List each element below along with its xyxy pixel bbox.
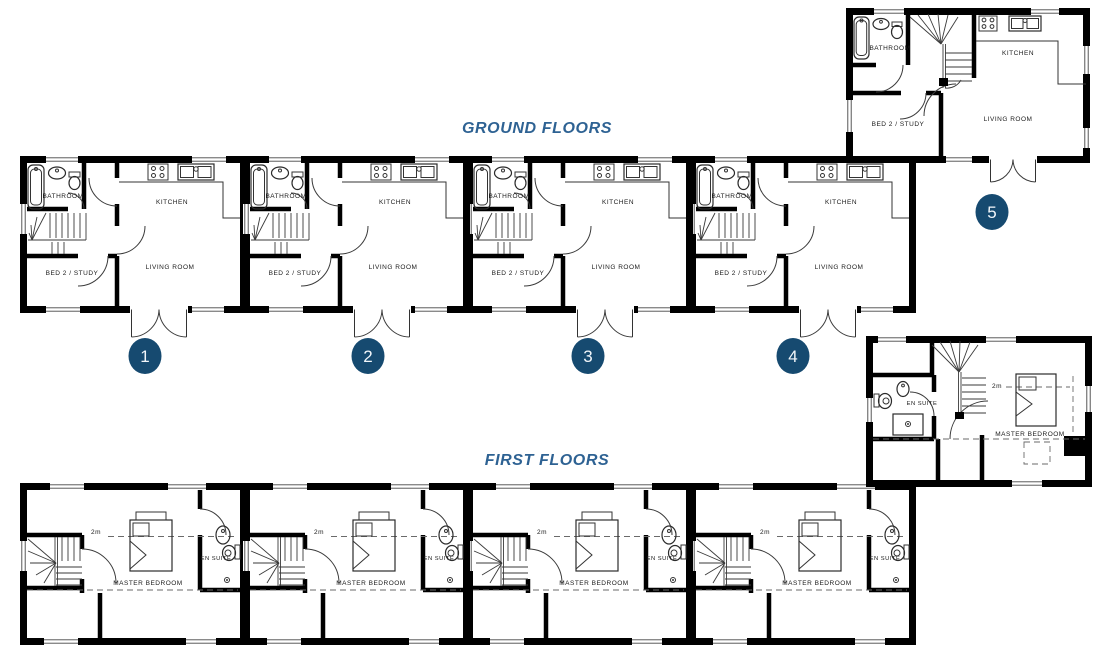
entry-door-arc [799, 306, 857, 337]
ensuite-sink-icon [216, 526, 230, 544]
bed2-study-label: BED 2 / STUDY [269, 270, 322, 277]
bathroom-sink-icon [718, 167, 735, 179]
window [846, 100, 853, 132]
landing-door-arc [82, 549, 116, 583]
ensuite-door-arc [646, 509, 672, 535]
window [638, 156, 672, 163]
landing-door-arc [751, 549, 785, 583]
stairs-icon [910, 14, 972, 88]
stairs-icon [28, 537, 82, 586]
badge-number: 4 [788, 347, 797, 366]
toilet-icon [69, 172, 80, 190]
bathtub-icon [854, 17, 869, 59]
window [715, 306, 749, 313]
window [986, 336, 1016, 343]
window [492, 306, 526, 313]
kitchen-sink-icon [847, 164, 883, 180]
toilet-icon [738, 172, 749, 190]
window [638, 306, 670, 313]
window [878, 336, 906, 343]
hob-icon [979, 16, 997, 31]
window [186, 638, 216, 645]
entry-door-arc [576, 306, 634, 337]
window [713, 638, 747, 645]
window [946, 156, 972, 163]
stairs-icon [474, 537, 528, 586]
ensuite-sink-icon [439, 526, 453, 544]
window [614, 483, 652, 490]
exterior-wall [850, 12, 1087, 160]
drain-icon [225, 578, 230, 583]
bed-icon [130, 512, 172, 571]
kitchen-label: KITCHEN [602, 199, 634, 206]
height-marker-label: 2m [992, 383, 1002, 390]
unit-5-first-floor: 2m EN SUITE MASTER BEDROOM [866, 336, 1092, 487]
bathroom-sink-icon [873, 19, 889, 30]
en-suite-label: EN SUITE [201, 556, 232, 562]
toilet-icon [292, 172, 303, 190]
bathtub-icon [28, 165, 44, 209]
bathroom-label: BATHROOM [488, 193, 529, 200]
kitchen-label: KITCHEN [825, 199, 857, 206]
height-marker-label: 2m [314, 529, 324, 536]
stairs-icon [251, 213, 309, 254]
bathtub-icon [474, 165, 490, 209]
window [632, 638, 662, 645]
window [46, 306, 80, 313]
ground-floor-unit-4: BATHROOM KITCHEN LIVING ROOM BED 2 / STU… [689, 156, 913, 337]
en-suite-label: EN SUITE [424, 556, 455, 562]
window [20, 204, 27, 234]
hall-door-arc [312, 178, 340, 206]
ensuite-toilet-icon [874, 394, 892, 409]
toilet-icon [892, 22, 903, 39]
interior-walls [27, 163, 117, 306]
living-room-door-arc [117, 226, 145, 254]
window [1083, 128, 1090, 148]
first-floors-title: FIRST FLOORS [485, 452, 610, 469]
window [715, 156, 747, 163]
en-suite-label: EN SUITE [870, 556, 901, 562]
bed-icon [353, 512, 395, 571]
window [496, 483, 530, 490]
window [273, 483, 307, 490]
window [243, 204, 250, 234]
exterior-wall [24, 487, 244, 642]
bathroom-label: BATHROOM [265, 193, 306, 200]
interior-walls [873, 343, 982, 480]
ensuite-sink-icon [885, 526, 899, 544]
bed-icon [576, 512, 618, 571]
bathtub-icon [251, 165, 267, 209]
ensuite-door-arc [869, 509, 895, 535]
first-floor-unit-3: 2m MASTER BEDROOM EN SUITE [466, 483, 690, 645]
kitchen-label: KITCHEN [156, 199, 188, 206]
window [1031, 8, 1059, 15]
badge-number: 5 [987, 203, 996, 222]
window [874, 8, 904, 15]
bathroom-label: BATHROOM [711, 193, 752, 200]
ensuite-door-arc [200, 509, 226, 535]
window [20, 541, 27, 571]
window [855, 638, 885, 645]
living-room-label: LIVING ROOM [592, 264, 641, 271]
bed2-study-label: BED 2 / STUDY [715, 270, 768, 277]
master-bedroom-label: MASTER BEDROOM [559, 580, 628, 587]
window [490, 638, 524, 645]
window [269, 306, 303, 313]
hall-door-arc [758, 178, 786, 206]
window [409, 638, 439, 645]
window [168, 483, 206, 490]
interior-walls [250, 163, 340, 306]
interior-walls [473, 163, 563, 306]
entry-door-arc [989, 156, 1037, 182]
height-marker-label: 2m [91, 529, 101, 536]
living-room-door-arc [340, 226, 368, 254]
unit-number-badge-3: 3 [572, 338, 605, 374]
kitchen-sink-icon [178, 164, 214, 180]
hall-door-arc [535, 178, 563, 206]
window [267, 638, 301, 645]
window [861, 306, 893, 313]
master-bedroom-label: MASTER BEDROOM [782, 580, 851, 587]
ground-floor-unit-1: BATHROOM KITCHEN LIVING ROOM BED 2 / STU… [20, 156, 244, 337]
dashed-outline [1024, 442, 1050, 464]
shower-icon [893, 414, 923, 435]
bathroom-label: BATHROOM [869, 45, 910, 52]
height-marker-label: 2m [537, 529, 547, 536]
living-room-label: LIVING ROOM [815, 264, 864, 271]
window [243, 541, 250, 571]
living-room-label: LIVING ROOM [984, 116, 1033, 123]
exterior-wall [470, 487, 690, 642]
floor-plan-page: GROUND FLOORS FIRST FLOORS [0, 0, 1110, 668]
bed2-study-label: BED 2 / STUDY [46, 270, 99, 277]
drain-icon [671, 578, 676, 583]
kitchen-label: KITCHEN [1002, 50, 1034, 57]
window [192, 156, 226, 163]
en-suite-label: EN SUITE [907, 401, 938, 407]
ensuite-door-arc [423, 509, 449, 535]
exterior-wall [693, 487, 913, 642]
master-bedroom-label: MASTER BEDROOM [995, 431, 1064, 438]
master-bedroom-label: MASTER BEDROOM [336, 580, 405, 587]
bed-icon [1016, 374, 1056, 426]
ground-floor-unit-3: BATHROOM KITCHEN LIVING ROOM BED 2 / STU… [466, 156, 690, 337]
first-floor-unit-4: 2m MASTER BEDROOM EN SUITE [689, 483, 913, 645]
window [719, 483, 753, 490]
floor-plan-canvas: GROUND FLOORS FIRST FLOORS [0, 0, 1110, 668]
drain-icon [448, 578, 453, 583]
hob-icon [817, 164, 837, 180]
living-room-label: LIVING ROOM [146, 264, 195, 271]
landing-door-arc [305, 549, 339, 583]
window [50, 483, 84, 490]
ground-floors-title: GROUND FLOORS [462, 120, 612, 137]
first-floor-unit-2: 2m MASTER BEDROOM EN SUITE [243, 483, 467, 645]
ensuite-sink-icon [662, 526, 676, 544]
bathroom-sink-icon [495, 167, 512, 179]
bathroom-door-arc [876, 65, 903, 92]
unit-number-badge-1: 1 [129, 338, 162, 374]
window [192, 306, 224, 313]
height-marker-label: 2m [760, 529, 770, 536]
bed-icon [799, 512, 841, 571]
hall-door-arc [89, 178, 117, 206]
entry-door-arc [130, 306, 188, 337]
living-room-door-arc [786, 226, 814, 254]
kitchen-sink-icon [401, 164, 437, 180]
stairs-icon [474, 213, 532, 254]
window [1083, 46, 1090, 74]
badge-number: 1 [140, 347, 149, 366]
master-bedroom-label: MASTER BEDROOM [113, 580, 182, 587]
bathroom-sink-icon [272, 167, 289, 179]
unit-number-badge-4: 4 [777, 338, 810, 374]
badge-number: 2 [363, 347, 372, 366]
first-floor-unit-1: 2m MASTER BEDROOM EN SUITE [20, 483, 244, 645]
landing-door-arc [950, 401, 988, 439]
window [269, 156, 301, 163]
landing-door-arc [528, 549, 562, 583]
bed2-study-label: BED 2 / STUDY [872, 121, 925, 128]
window [415, 156, 449, 163]
living-room-door-arc [563, 226, 591, 254]
bathroom-label: BATHROOM [42, 193, 83, 200]
kitchen-sink-icon [624, 164, 660, 180]
stairs-icon [28, 213, 86, 254]
stairs-icon [697, 213, 755, 254]
toilet-icon [515, 172, 526, 190]
hob-icon [148, 164, 168, 180]
badge-number: 3 [583, 347, 592, 366]
window [46, 156, 78, 163]
unit-5-ground-floor: BATHROOM KITCHEN LIVING ROOM BED 2 / STU… [846, 8, 1090, 182]
living-room-label: LIVING ROOM [369, 264, 418, 271]
ground-floor-unit-2: BATHROOM KITCHEN LIVING ROOM BED 2 / STU… [243, 156, 467, 337]
bathroom-sink-icon [49, 167, 66, 179]
window [391, 483, 429, 490]
window [866, 398, 873, 422]
kitchen-sink-icon [1009, 16, 1041, 31]
bedroom-door-arc [900, 93, 926, 119]
kitchen-label: KITCHEN [379, 199, 411, 206]
hob-icon [371, 164, 391, 180]
bathtub-icon [697, 165, 713, 209]
stairs-icon [932, 341, 986, 419]
hob-icon [594, 164, 614, 180]
entry-door-arc [353, 306, 411, 337]
interior-walls [696, 163, 786, 306]
ensuite-sink-icon [897, 382, 909, 397]
stairs-icon [697, 537, 751, 586]
drain-icon [894, 578, 899, 583]
window [415, 306, 447, 313]
unit-number-badge-5: 5 [976, 194, 1009, 230]
window [44, 638, 78, 645]
stairs-icon [251, 537, 305, 586]
unit-number-badge-2: 2 [352, 338, 385, 374]
exterior-wall [247, 487, 467, 642]
window [492, 156, 524, 163]
window [1085, 386, 1092, 412]
window [1012, 480, 1042, 487]
bed2-study-label: BED 2 / STUDY [492, 270, 545, 277]
en-suite-label: EN SUITE [647, 556, 678, 562]
kitchen-counter [976, 41, 1086, 84]
